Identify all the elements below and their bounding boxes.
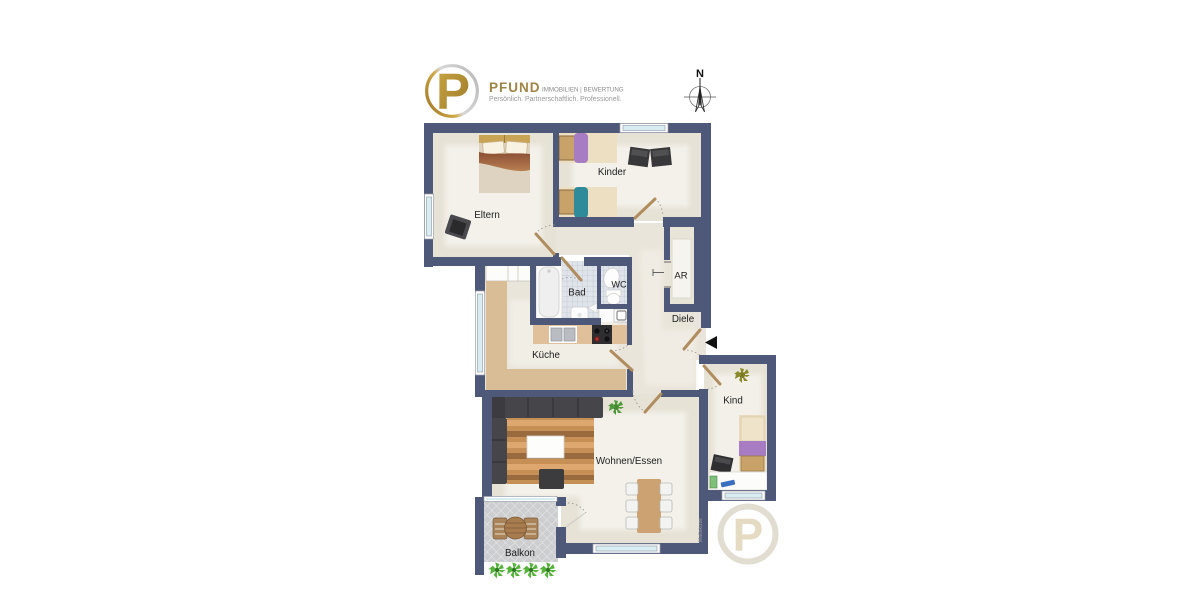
- svg-text:Eltern: Eltern: [474, 210, 500, 221]
- svg-text:Diele: Diele: [672, 314, 695, 325]
- svg-text:Wohnen/Essen: Wohnen/Essen: [596, 456, 662, 467]
- svg-text:Kind: Kind: [723, 396, 743, 407]
- svg-text:PFUND: PFUND: [489, 80, 541, 95]
- svg-text:Küche: Küche: [532, 350, 560, 361]
- svg-text:P: P: [436, 63, 470, 120]
- svg-text:Balkon: Balkon: [505, 548, 535, 559]
- svg-text:Persönlich. Partnerschaftlich.: Persönlich. Partnerschaftlich. Professio…: [489, 96, 622, 103]
- svg-text:WC: WC: [611, 280, 627, 290]
- svg-text:Bad: Bad: [568, 288, 585, 299]
- svg-text:P: P: [733, 509, 764, 561]
- svg-text:Maßskizze: Maßskizze: [698, 518, 704, 542]
- svg-text:AR: AR: [674, 271, 687, 282]
- svg-text:Kinder: Kinder: [598, 167, 627, 178]
- svg-text:IMMOBILIEN | BEWERTUNG: IMMOBILIEN | BEWERTUNG: [542, 87, 624, 94]
